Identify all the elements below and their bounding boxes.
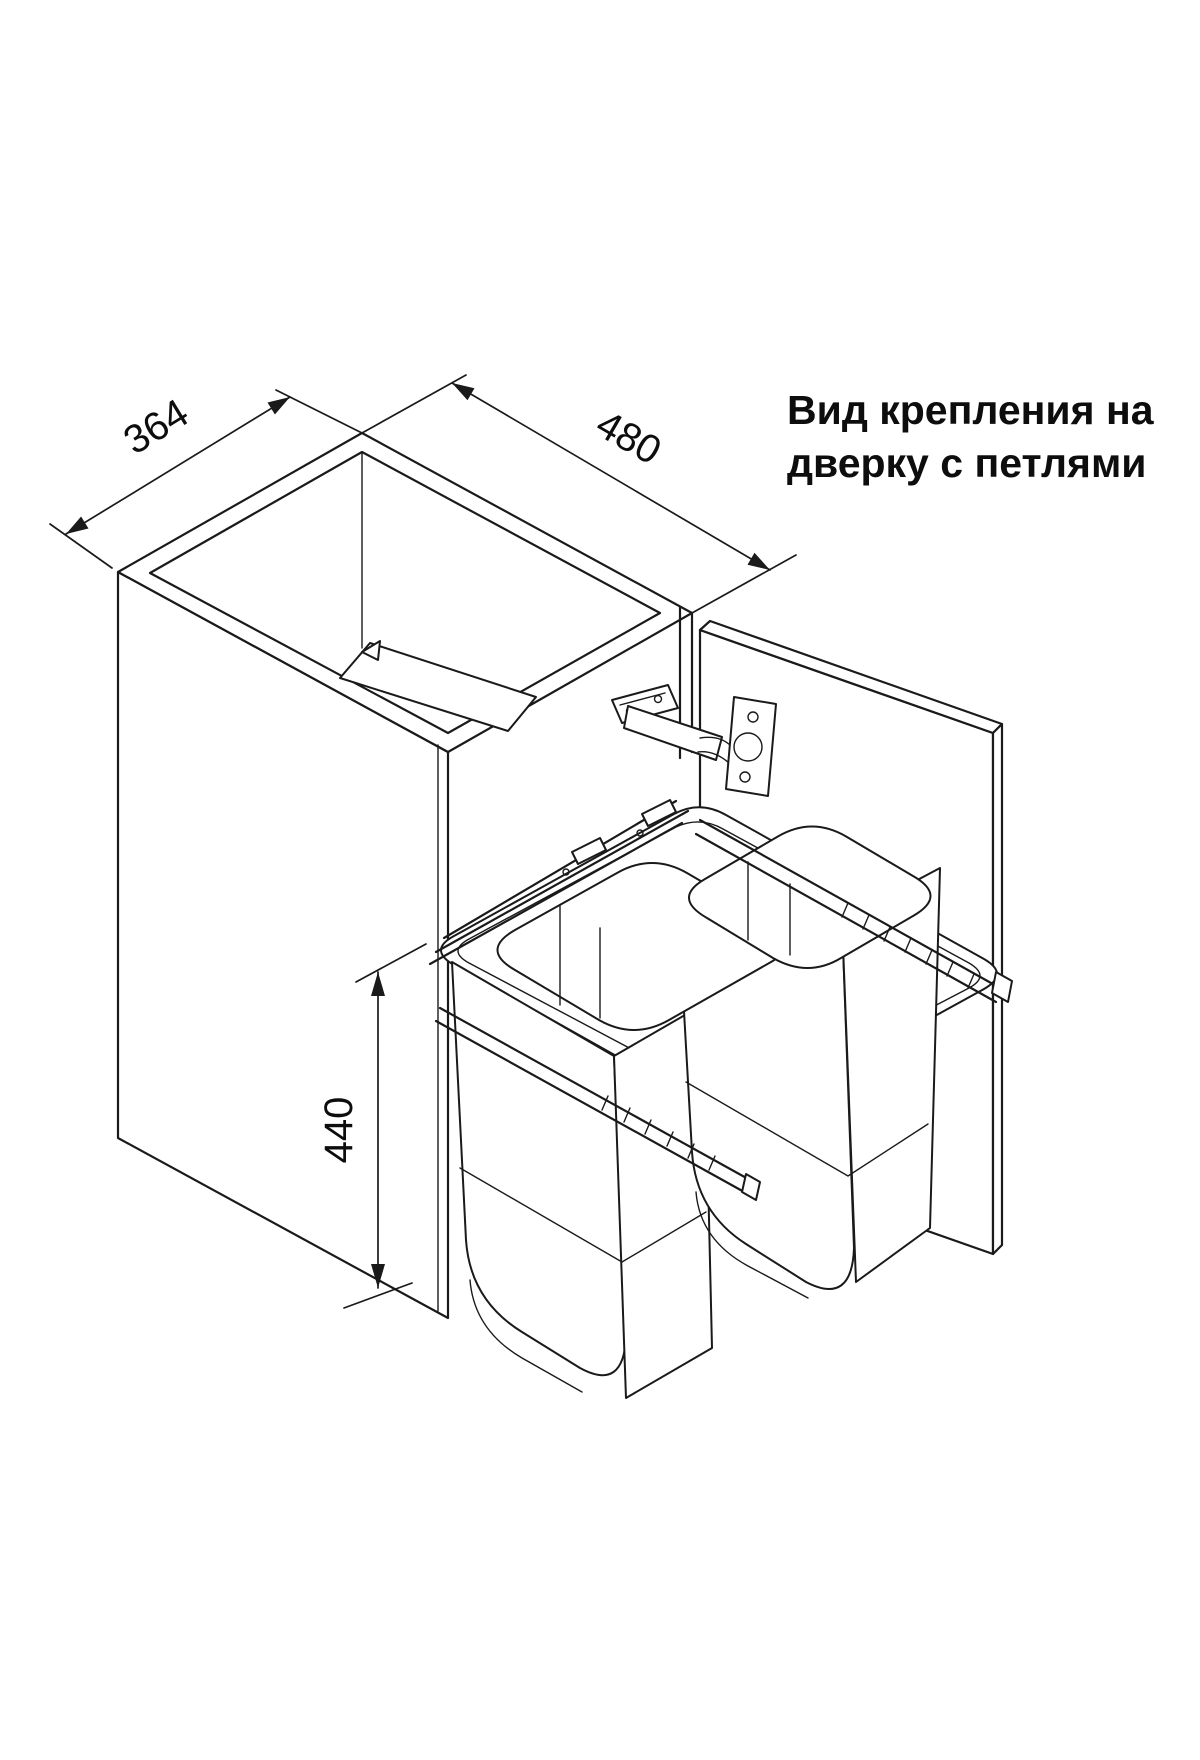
drawing-title: Вид крепления на дверку с петлями xyxy=(787,387,1155,486)
technical-drawing-page: 364 480 440 Вид крепления на дверку с пе… xyxy=(0,0,1200,1760)
dim364-label: 364 xyxy=(116,391,196,463)
drawing-canvas: 364 480 440 Вид крепления на дверку с пе… xyxy=(0,0,1200,1760)
title-line-2: дверку с петлями xyxy=(787,440,1147,486)
concealed-hinge xyxy=(612,685,776,796)
dim480-arrow-left xyxy=(452,383,475,400)
dim480-label: 480 xyxy=(589,402,669,473)
title-line-1: Вид крепления на xyxy=(787,387,1155,433)
dim364-arrow-left xyxy=(66,517,89,535)
dim364-arrow-right xyxy=(268,397,291,415)
dim440-label: 440 xyxy=(317,1097,361,1164)
dim480-arrow-right xyxy=(748,553,771,570)
